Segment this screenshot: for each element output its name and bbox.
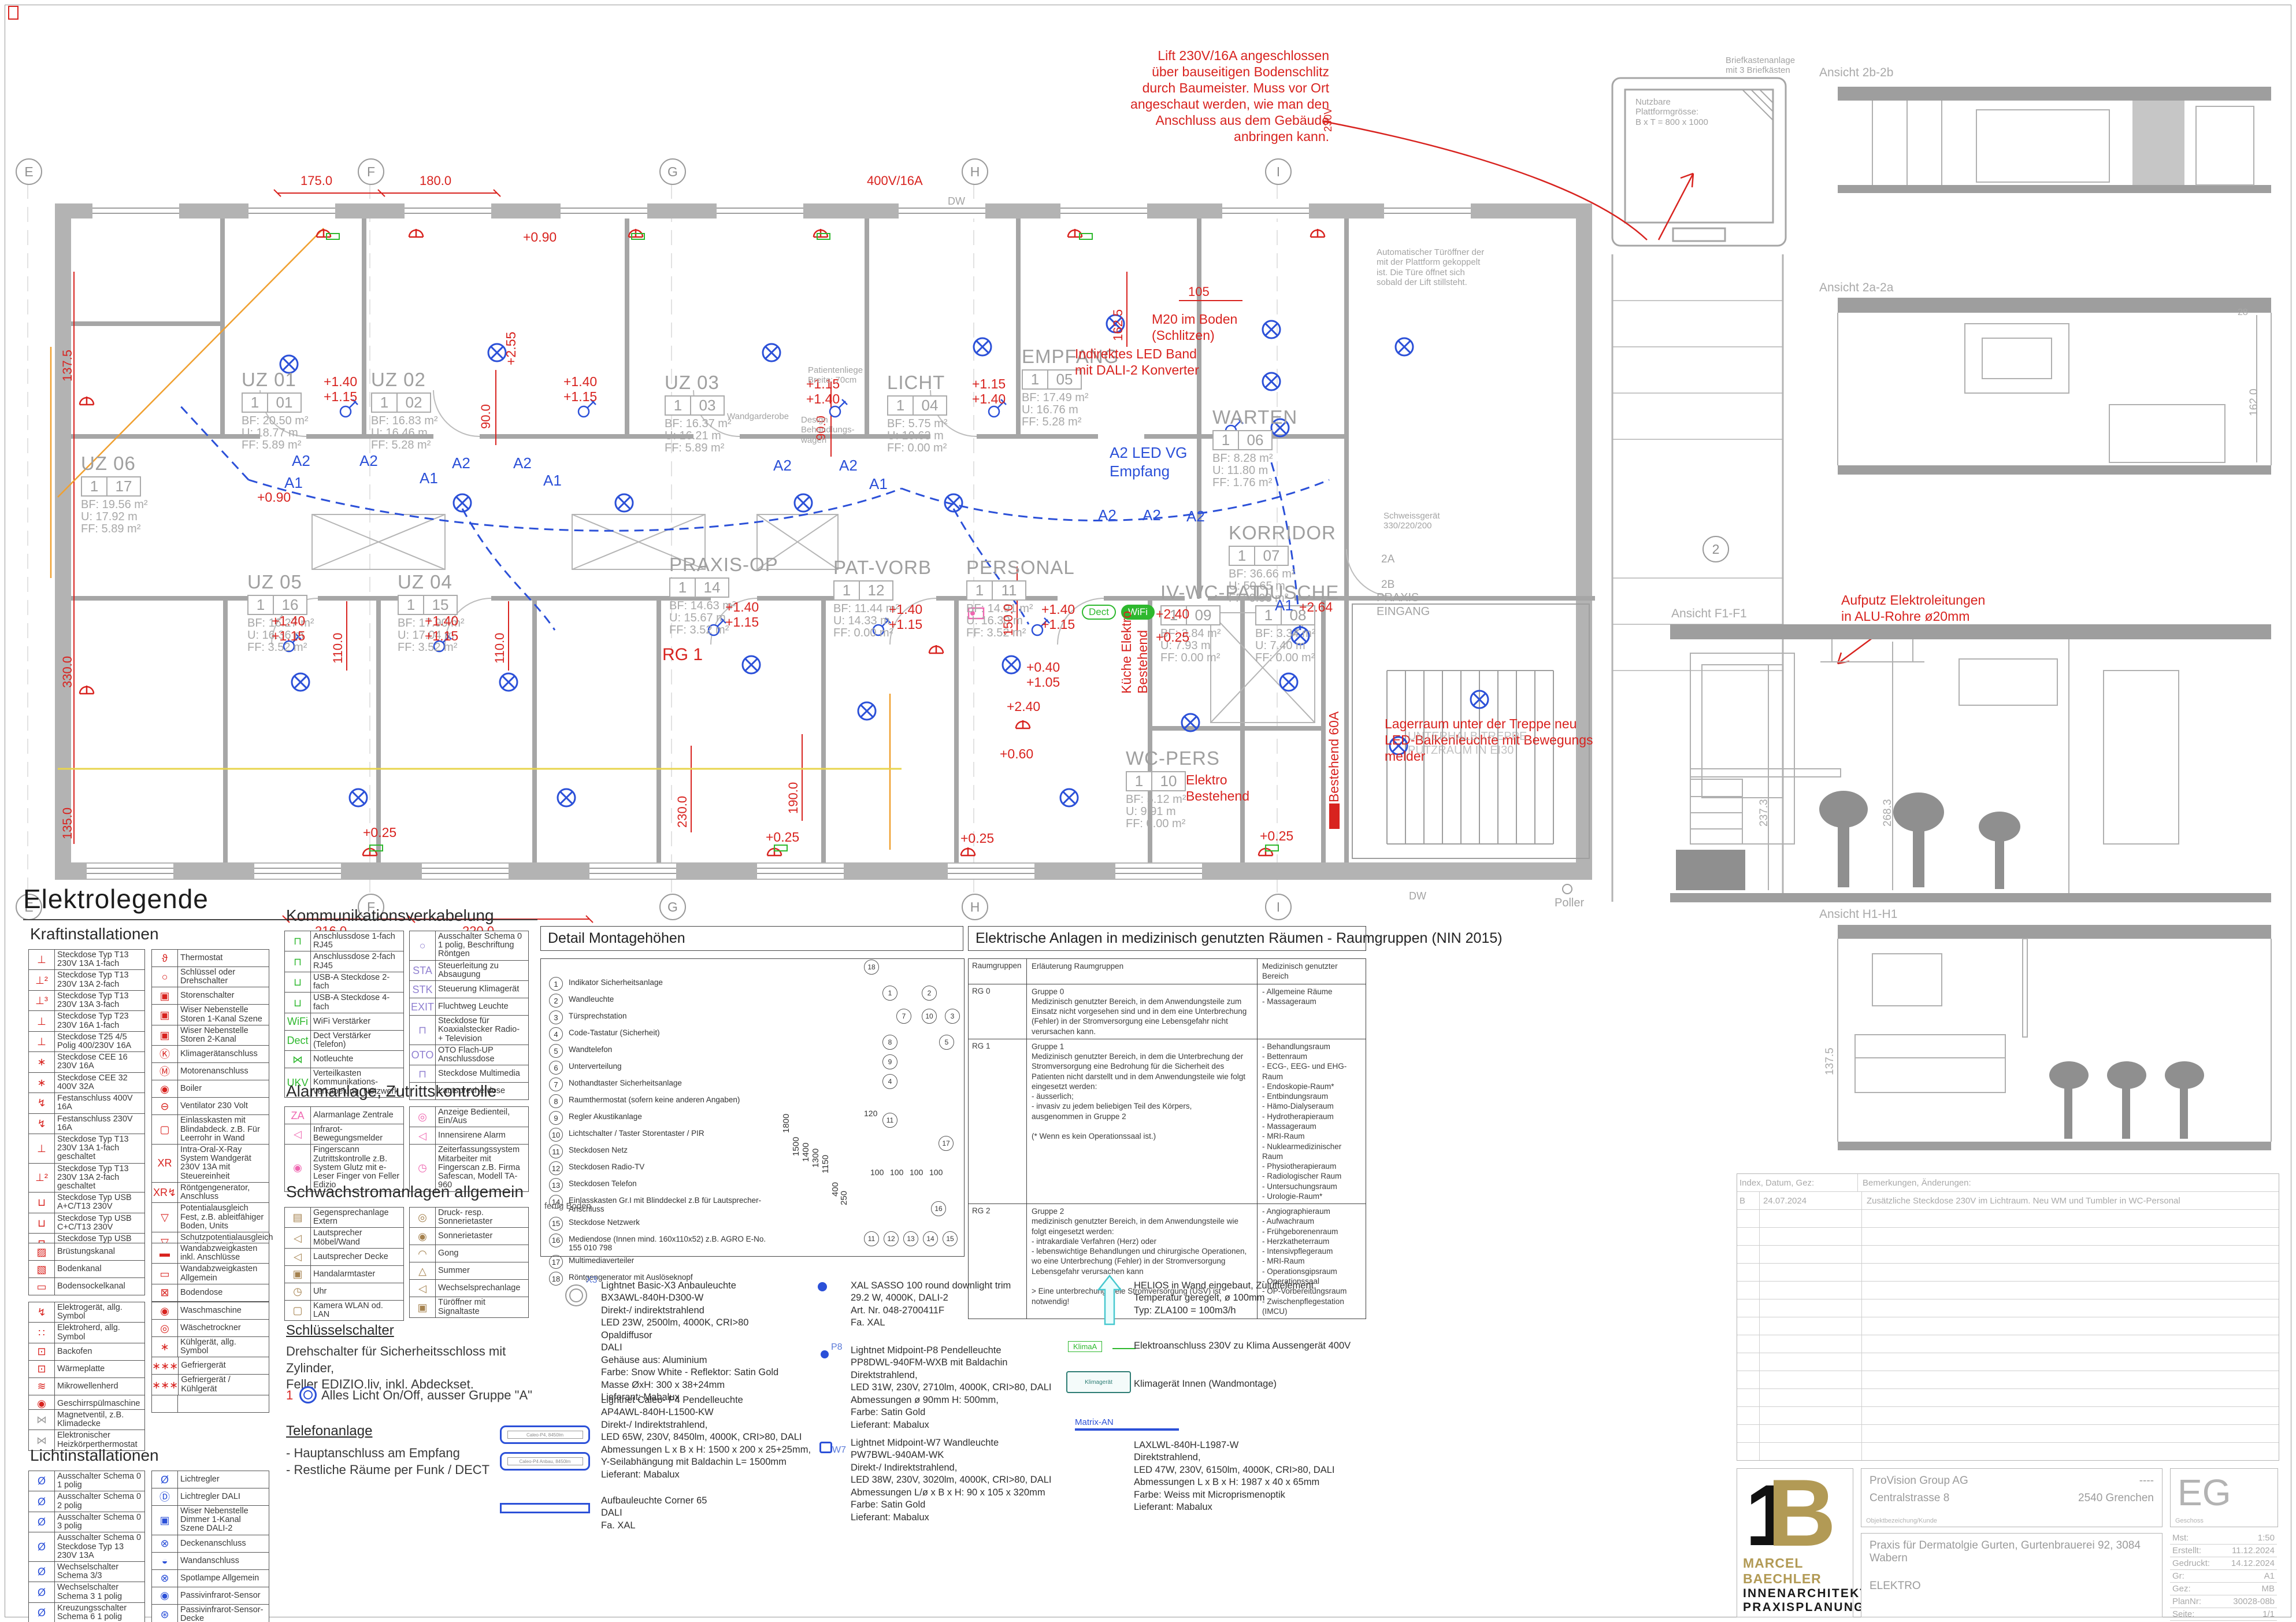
room-tag: UZ 03103BF: 16.37 m² U: 16.21 m FF: 5.89…	[665, 373, 732, 454]
legend-item: ○Schlüssel oder Drehschalter	[152, 967, 269, 987]
legend-item: ▣Türöffner mit Signaltaste	[410, 1297, 528, 1317]
level-mark: +1.40 +1.15	[272, 614, 305, 644]
level-mark: +0.90	[523, 230, 557, 245]
legend-item: ⊗Deckenanschluss	[152, 1535, 269, 1553]
legend-item: ∗∗∗Gefriergerät	[152, 1357, 269, 1375]
logo: 1B	[1737, 1469, 1853, 1556]
legend-symbol-icon: ◠	[410, 1245, 436, 1262]
level-mark: +0.40 +1.05	[1026, 660, 1060, 690]
legend-item: STASteuerleitung zu Absaugung	[410, 961, 528, 981]
legend-symbol-icon: ⊥²	[29, 1164, 55, 1193]
lift-230v-label: 230V	[1322, 108, 1335, 132]
montage-item: 6Unterverteilung	[549, 1061, 780, 1075]
caleo-bar-icon: Caleo-P4 Anbau, 8450lm	[500, 1452, 590, 1471]
grid-bubble: H	[962, 894, 988, 920]
legend-item: ◎Druck- resp. Sonnerietaster	[410, 1208, 528, 1228]
client-dash: ----	[2139, 1475, 2154, 1487]
legend-item: ⊥³Steckdose Typ T13 230V 13A 3-fach	[29, 991, 144, 1011]
grid-bubble: E	[16, 158, 42, 185]
montage-item: 13Steckdosen Telefon	[549, 1178, 780, 1192]
dim-label: 110.0	[492, 633, 507, 664]
section-title: Kommunikationsverkabelung	[286, 906, 494, 925]
room-tag: UZ 02102BF: 16.83 m² U: 16.46 m FF: 5.28…	[371, 370, 438, 451]
project-discipline: ELEKTRO	[1861, 1565, 2162, 1593]
legend-symbol-icon: ZA	[285, 1107, 311, 1124]
legend-item: ⊓Anschlussdose 1-fach RJ45	[285, 931, 403, 951]
led-band-note: Indirektes LED Band mit DALI-2 Konverter	[1075, 346, 1199, 378]
legend-symbol-icon: ⊔	[285, 993, 311, 1012]
legend-item: ◎Anzeige Bedienteil, Ein/Aus	[410, 1107, 528, 1127]
meta-row: Seite:1/1	[2170, 1608, 2277, 1621]
office-address: Mühlestrasse 9 CH-2540 Grenchen T. 032 5…	[1743, 1619, 1847, 1622]
legend-item: ∷Elektroherd, allg. Symbol	[29, 1323, 144, 1343]
lift-note: Lift 230V/16A angeschlossen über bauseit…	[1098, 47, 1329, 145]
level-mark: +0.25	[363, 825, 396, 840]
level-mark: +2.40	[1007, 699, 1040, 714]
brand-line: INNENARCHITEKTUR	[1743, 1587, 1847, 1601]
legend-symbol-icon: ⊥³	[29, 991, 55, 1010]
legend-symbol-icon: ◁	[410, 1127, 436, 1144]
legend-symbol-icon: △	[410, 1262, 436, 1279]
dim-label: 175.0	[301, 173, 332, 188]
elevation-dim: 237.3	[1758, 799, 1771, 827]
legend-col: ○Ausschalter Schema 0 1 polig, Beschrift…	[409, 931, 529, 1100]
klimageraet-icon: Klimagerät	[1066, 1371, 1131, 1393]
luminaire-spec: LAXLWL-840H-L1987-W Direktstrahlend, LED…	[1134, 1439, 1411, 1514]
legend-symbol-icon: ∗∗∗	[152, 1375, 179, 1394]
legend-item: ⊠Bodendose	[152, 1284, 269, 1302]
grid-bubble: G	[659, 894, 686, 920]
legend-item: ◁Wechselsprechanlage	[410, 1280, 528, 1297]
telefon-text: - Hauptanschluss am Empfang - Restliche …	[286, 1445, 529, 1478]
helios-arrow-icon	[1095, 1275, 1124, 1327]
legend-symbol-icon: Ø	[29, 1562, 55, 1582]
putzraum-note: UNTERHALB TREPPE PUTZRAUM IN EI30	[1408, 729, 1527, 758]
key-number: 1	[286, 1387, 293, 1404]
project-title: Praxis für Dermatolgie Gurten, Gurtenbra…	[1861, 1534, 2162, 1565]
bestehend-note: Bestehend 60A	[1326, 712, 1342, 802]
nin-header: RaumgruppenErläuterung RaumgruppenMedizi…	[969, 959, 1366, 984]
legend-symbol-icon: ○	[410, 931, 436, 960]
legend-symbol-icon: ∗	[29, 1073, 55, 1093]
legend-symbol-icon: OTO	[410, 1045, 436, 1065]
legend-symbol-icon	[152, 1395, 178, 1412]
dim-label: 137.5	[60, 350, 75, 382]
circuit-label: A1	[284, 474, 303, 492]
dect-repeater-icon: Dect	[1082, 605, 1116, 620]
legend-symbol-icon: ▭	[152, 1264, 178, 1283]
legend-item: ◉Waschmaschine	[152, 1302, 269, 1320]
legend-item: ZAAlarmanlage Zentrale	[285, 1107, 403, 1124]
nin-row: RG 0Gruppe 0 Medizinisch genutzter Berei…	[969, 984, 1366, 1039]
legend-symbol-icon: Ø	[29, 1512, 55, 1532]
legend-col: ZAAlarmanlage Zentrale◁Infrarot-Bewegung…	[284, 1106, 404, 1192]
montage-item: 16Mediendose (Innen mind. 160x110x52) z.…	[549, 1234, 780, 1253]
legend-col: ⊓Anschlussdose 1-fach RJ45⊓Anschlussdose…	[284, 931, 404, 1098]
dw-label: DW	[1409, 890, 1426, 903]
legend-symbol-icon: ▣	[152, 1506, 178, 1535]
plan-sheet: E F G H I E F G H I 2 UZ 06117BF: 19.56 …	[0, 0, 2296, 1622]
montage-title: Detail Montagehöhen	[540, 926, 963, 951]
legend-symbol-icon: ⊓	[410, 1016, 436, 1045]
legend-item: ⊥Steckdose Typ T13 230V 13A 1-fach	[29, 950, 144, 970]
legend-symbol-icon: ◷	[285, 1283, 311, 1300]
legend-item: XRIntra-Oral-X-Ray System Wandgerät 230V…	[152, 1145, 269, 1183]
dim-label: 90.0	[479, 404, 494, 429]
room-tag: UZ 06117BF: 19.56 m² U: 17.92 m FF: 5.89…	[81, 454, 148, 535]
legend-symbol-icon: ▣	[152, 987, 178, 1004]
level-mark: +0.25	[766, 830, 799, 845]
legend-item: ◁Lautsprecher Möbel/Wand	[285, 1228, 403, 1248]
legend-symbol-icon: ↯	[29, 1093, 55, 1113]
montage-item: 11Steckdosen Netz	[549, 1145, 780, 1158]
section-title: Schwachstromanlagen allgemein	[286, 1183, 524, 1201]
montage-items: 1Indikator Sicherheitsanlage2Wandleuchte…	[549, 977, 780, 1288]
dim-label: 150.0	[1001, 604, 1016, 636]
section-title: Kraftinstallationen	[30, 925, 159, 943]
legend-item: ▤Gegensprechanlage Extern	[285, 1208, 403, 1228]
room-tag: IV-WC-PAT109BF: 3.84 m² U: 7.93 m FF: 0.…	[1160, 583, 1262, 664]
legend-item: ØWechselschalter Schema 3/3	[29, 1562, 144, 1582]
brand-line: PRAXISPLANUNG	[1743, 1601, 1847, 1614]
luminaire-spec: Klimagerät Innen (Wandmontage)	[1134, 1378, 1411, 1390]
room-tag: WARTEN106BF: 8.28 m² U: 11.80 m FF: 1.76…	[1212, 408, 1297, 489]
grid-bubble: F	[358, 158, 384, 185]
legend-item: ⓀKlimagerätanschluss	[152, 1046, 269, 1063]
legend-item: ⓂMotorenanschluss	[152, 1063, 269, 1080]
m20-note: M20 im Boden (Schlitzen)	[1152, 311, 1237, 343]
legend-symbol-icon: Dect	[285, 1031, 311, 1050]
led-vg-note: A2 LED VG Empfang	[1110, 444, 1187, 480]
legend-item: ◎Wäschetrockner	[152, 1320, 269, 1337]
dim-label: 190.0	[786, 782, 801, 814]
luminaire-spec: Lightnet Midpoint-W7 Wandleuchte PW7BWL-…	[851, 1437, 1105, 1524]
legend-item: ▨Brüstungskanal	[29, 1243, 144, 1261]
elevation-dim: 137.5	[1824, 1047, 1837, 1075]
legend-item: ⊖Ventilator 230 Volt	[152, 1098, 269, 1115]
grid-bubble: 2	[1702, 536, 1729, 562]
matrix-an-tag: Matrix-AN	[1075, 1417, 1179, 1431]
section-title: Telefonanlage	[286, 1423, 372, 1439]
legend-item: ⊓Anschlussdose 2-fach RJ45	[285, 951, 403, 972]
legend-item	[152, 1395, 269, 1413]
luminaire-spec: Aufbauleuchte Corner 65 DALI Fa. XAL	[601, 1495, 844, 1532]
legend-item: ØAusschalter Schema 0 Steckdose Typ 13 2…	[29, 1532, 144, 1562]
legend-item: ▣Wiser Nebenstelle Storen 2-Kanal	[152, 1025, 269, 1046]
legend-symbol-icon: ⊓	[285, 931, 311, 951]
corner65-icon	[500, 1503, 590, 1513]
dim-label: 135.0	[60, 808, 75, 839]
dim-label: 105	[1188, 284, 1210, 299]
luminaire-spec: HELIOS in Wand eingebaut, Zuluftelement,…	[1134, 1280, 1405, 1317]
legend-symbol-icon: WiFi	[285, 1013, 311, 1030]
room-tag: LICHT104BF: 5.75 m² U: 10.63 m FF: 0.00 …	[887, 373, 947, 454]
level-mark: +1.40 +1.15	[425, 614, 458, 644]
section-title: Lichtinstallationen	[30, 1446, 159, 1465]
legend-item: △Summer	[410, 1262, 528, 1280]
legend-symbol-icon: ▣	[285, 1266, 311, 1283]
legend-item: ◉Boiler	[152, 1080, 269, 1098]
legend-item: ∗Kühlgerät, allg. Symbol	[152, 1337, 269, 1357]
briefkasten-note: Briefkastenanlage mit 3 Briefkästen	[1726, 55, 1795, 76]
legend-item: ▣Handalarmtaster	[285, 1266, 403, 1283]
dim-label: 330.0	[60, 656, 75, 688]
liege-label: Patientenliege Breite: 70cm	[808, 365, 863, 386]
legend-item: ↯Festanschluss 400V 16A	[29, 1093, 144, 1113]
legend-symbol-icon: ◎	[152, 1320, 178, 1336]
legend-item: ØKreuzungsschalter Schema 6 1 polig	[29, 1603, 144, 1622]
legend-item: ⊛Passivinfrarot-Sensor-Decke	[152, 1605, 269, 1622]
elevation-dim: 268.3	[1882, 799, 1894, 827]
legend-item: EXITFluchtweg Leuchte	[410, 998, 528, 1016]
floor-caption: Geschoss	[2175, 1517, 2204, 1524]
legend-symbol-icon: ◉	[410, 1228, 436, 1245]
dw-label: DW	[948, 195, 965, 208]
legend-item: ØAusschalter Schema 0 3 polig	[29, 1512, 144, 1532]
legend-symbol-icon: ∗∗∗	[152, 1357, 179, 1374]
legend-symbol-icon: STK	[410, 981, 436, 998]
circuit-label: A1	[420, 469, 438, 487]
legend-symbol-icon: ⊥²	[29, 970, 55, 990]
legend-col: ◎Anzeige Bedienteil, Ein/Aus◁Innensirene…	[409, 1106, 529, 1192]
circuit-label: A2	[359, 452, 378, 470]
montage-item: 15Steckdose Netzwerk	[549, 1217, 780, 1231]
floor-code: EG	[2171, 1469, 2278, 1514]
logo-block: 1B MARCEL BAECHLER INNENARCHITEKTUR PRAX…	[1737, 1468, 1853, 1617]
circuit-label: A2	[1143, 506, 1161, 524]
legend-symbol-icon: Ⓓ	[152, 1488, 178, 1505]
legend-item: ⊗Spotlampe Allgemein	[152, 1570, 269, 1587]
legend-item: XR↯Röntgengenerator, Anschluss	[152, 1183, 269, 1203]
legend-item: ØWechselschalter Schema 3 1 polig	[29, 1582, 144, 1602]
legend-symbol-icon: STA	[410, 961, 436, 980]
legend-symbol-icon: ◁	[285, 1124, 311, 1144]
circuit-label: A2	[452, 454, 470, 472]
legend-item: ⊓Steckdose für Koaxialstecker Radio- + T…	[410, 1016, 528, 1045]
legend-item: ◁Infrarot-Bewegungsmelder	[285, 1124, 403, 1145]
legend-symbol-icon: ◁	[285, 1249, 311, 1265]
luminaire-spec: XAL SASSO 100 round downlight trim 29.2 …	[851, 1280, 1099, 1330]
grid-bubble: I	[1265, 894, 1292, 920]
room-group-label: RG 1	[662, 645, 703, 665]
legend-item: ◷Uhr	[285, 1283, 403, 1301]
room-tag: DUSCHE108BF: 3.34 m² U: 7.40 m FF: 0.00 …	[1255, 583, 1339, 664]
legend-symbol-icon: ○	[152, 967, 178, 987]
legend-col: ◎Druck- resp. Sonnerietaster◉Sonnerietas…	[409, 1207, 529, 1318]
legend-symbol-icon: ⊔	[29, 1193, 55, 1212]
legend-symbol-icon: ⊓	[285, 951, 311, 971]
legend-item: ▣Storenschalter	[152, 987, 269, 1005]
section-title: Schlüsselschalter	[286, 1323, 394, 1339]
platform-note: Nutzbare Plattformgrösse: B x T = 800 x …	[1635, 97, 1708, 127]
legend-item: ⊔USB-A Steckdose 2-fach	[285, 972, 403, 993]
montage-item: 5Wandtelefon	[549, 1044, 780, 1058]
pos-2b: 2B	[1381, 578, 1394, 591]
legend-item: ≋Mikrowellenherd	[29, 1378, 144, 1395]
garderobe-label: Wandgarderobe	[727, 412, 789, 421]
legend-item: ↯Elektrogerät, allg. Symbol	[29, 1302, 144, 1323]
montage-item: 2Wandleuchte	[549, 994, 780, 1008]
legend-item: ⊥²Steckdose Typ T13 230V 13A 2-fach	[29, 970, 144, 990]
legend-symbol-icon: Ø	[29, 1532, 55, 1561]
project-box: Praxis für Dermatolgie Gurten, Gurtenbra…	[1861, 1533, 2163, 1617]
legend-symbol-icon: XR	[152, 1145, 178, 1182]
dim-label: 400V/16A	[867, 173, 923, 188]
legend-symbol-icon: ◉	[152, 1302, 178, 1319]
legend-item: OTOOTO Flach-UP Anschlussdose	[410, 1045, 528, 1065]
circuit-label: A1	[869, 475, 888, 493]
floor-box: EG Geschoss	[2170, 1468, 2278, 1527]
legend-symbol-icon: ▬	[152, 1243, 178, 1263]
legend-symbol-icon: ⋈	[29, 1410, 55, 1430]
legend-symbol-icon: ⊛	[152, 1605, 178, 1622]
legend-item: ▧Bodenkanal	[29, 1261, 144, 1278]
legend-symbol-icon: Ø	[152, 1471, 178, 1488]
client-name: ProVision Group AG	[1870, 1475, 1968, 1487]
legend-symbol-icon: ◉	[152, 1587, 178, 1604]
legend-col: ▤Gegensprechanlage Extern◁Lautsprecher M…	[284, 1207, 404, 1321]
legend-item: ∗∗∗Gefriergerät / Kühlgerät	[152, 1375, 269, 1395]
legend-symbol-icon: ▧	[29, 1261, 55, 1277]
legend-item: ◠Gong	[410, 1245, 528, 1262]
legend-col: ϑThermostat○Schlüssel oder Drehschalter▣…	[151, 949, 269, 1270]
p8-dot-icon	[821, 1350, 829, 1358]
legend-symbol-icon: Ø	[29, 1491, 55, 1511]
x3-tag: X3	[586, 1275, 598, 1286]
eingang-label: PRAXIS EINGANG	[1377, 591, 1430, 619]
elevation-label: Ansicht F1-F1	[1671, 607, 1747, 621]
legend-item: DectDect Verstärker (Telefon)	[285, 1031, 403, 1051]
legend-item: ▣Wiser Nebenstelle Dimmer 1-Kanal Szene …	[152, 1506, 269, 1535]
elevation-dim: 28	[2238, 308, 2248, 318]
legend-symbol-icon: ▽	[152, 1203, 178, 1232]
aufputz-note: Aufputz Elektroleitungen in ALU-Rohre ø2…	[1841, 592, 1985, 624]
legend-symbol-icon: ⊥	[29, 1134, 55, 1163]
legend-symbol-icon: ▣	[410, 1297, 436, 1317]
legend-symbol-icon: ⊥	[29, 1011, 55, 1031]
legend-col: ØAusschalter Schema 0 1 poligØAusschalte…	[28, 1471, 145, 1622]
level-mark: +2.55	[504, 332, 519, 365]
legend-item: ⊔Steckdose Typ USB C+C/T13 230V	[29, 1213, 144, 1234]
level-mark: +1.40 +1.15	[1041, 602, 1075, 632]
meta-row: Mst:1:50	[2170, 1532, 2277, 1545]
revision-header: Index, Datum, Gez:Bemerkungen, Änderunge…	[1737, 1174, 2279, 1192]
circuit-label: A2	[773, 457, 792, 475]
level-mark: +0.90	[257, 490, 291, 505]
w7-icon	[819, 1442, 832, 1453]
legend-item: ⊓Steckdose Multimedia	[410, 1065, 528, 1083]
legend-item: ◉Passivinfrarot-Sensor	[152, 1587, 269, 1605]
legend-symbol-icon: ▣	[152, 1005, 178, 1024]
legend-symbol-icon: ⊡	[29, 1361, 55, 1377]
legend-col: ⋈Magnetventil, z.B. Klimadecke⋈Elektroni…	[28, 1409, 145, 1451]
legend-item: ▬Wandabzweigkasten inkl. Anschlüsse	[152, 1243, 269, 1264]
circuit-label: A1	[1275, 597, 1293, 614]
legend-item: ⊔USB-A Steckdose 4-fach	[285, 993, 403, 1013]
legend-item: ↯Festanschluss 230V 16A	[29, 1114, 144, 1134]
legend-symbol-icon: ⊓	[410, 1065, 436, 1082]
legend-symbol-icon: ▢	[152, 1115, 178, 1144]
legend-symbol-icon: ◁	[410, 1280, 436, 1297]
legend-symbol-icon: ∗	[29, 1052, 55, 1072]
montage-item: 7Nothandtaster Sicherheitsanlage	[549, 1077, 780, 1091]
elektro-note: Elektro Bestehend	[1186, 772, 1249, 804]
legend-col: ↯Elektrogerät, allg. Symbol∷Elektroherd,…	[28, 1302, 145, 1413]
legend-item: ϑThermostat	[152, 950, 269, 967]
legend-item: ◉Sonnerietaster	[410, 1228, 528, 1245]
client-city: 2540 Grenchen	[2078, 1492, 2154, 1505]
client-caption: Objektbezeichung/Kunde	[1866, 1517, 1937, 1524]
legend-item: ⋈Magnetventil, z.B. Klimadecke	[29, 1410, 144, 1430]
dim-label: 110.0	[331, 633, 346, 664]
legend-symbol-icon: Ø	[29, 1603, 55, 1622]
legend-col: ▬Wandabzweigkasten inkl. Anschlüsse▭Wand…	[151, 1243, 269, 1302]
legend-symbol-icon: ⊔	[29, 1213, 55, 1233]
legend-symbol-icon: ◒	[152, 1553, 178, 1569]
legend-symbol-icon: ▢	[285, 1301, 311, 1320]
legend-item: ØAusschalter Schema 0 1 polig	[29, 1471, 144, 1491]
legend-symbol-icon: ▤	[285, 1208, 311, 1227]
legend-item: ⒹLichtregler DALI	[152, 1488, 269, 1506]
door-opener-note: Automatischer Türöffner der mit der Plat…	[1377, 247, 1509, 287]
legend-symbol-icon: Ø	[29, 1582, 55, 1602]
level-mark: +1.40 +1.15	[563, 375, 597, 405]
legend-symbol-icon: ↯	[29, 1302, 55, 1322]
client-street: Centralstrasse 8	[1870, 1492, 1949, 1505]
meta-row: Gedruckt:14.12.2024	[2170, 1557, 2277, 1570]
legend-symbol-icon: ◎	[410, 1107, 436, 1127]
legend-symbol-icon: ⊖	[152, 1098, 178, 1114]
legend-item: ⊥Steckdose T25 4/5 Polig 400/230V 16A	[29, 1032, 144, 1052]
level-mark: +2.64	[1299, 600, 1333, 615]
legend-item: ◁Innensirene Alarm	[410, 1127, 528, 1145]
level-mark: +0.25	[1156, 630, 1189, 645]
legend-symbol-icon: ⋈	[285, 1051, 311, 1068]
legend-item: ▣Wiser Nebenstelle Storen 1-Kanal Szene	[152, 1005, 269, 1025]
legend-symbol-icon: ϑ	[152, 950, 178, 966]
revision-table: Index, Datum, Gez:Bemerkungen, Änderunge…	[1737, 1173, 2279, 1461]
dim-label: 180.0	[420, 173, 451, 188]
schweiss-note: Schweissgerät 330/220/200	[1383, 511, 1440, 531]
legend-symbol-icon: ⊗	[152, 1535, 178, 1552]
legend-symbol-icon: ▭	[29, 1278, 55, 1295]
section-title: Alarmanlage, Zutrittskontrolle	[286, 1082, 496, 1101]
legend-symbol-icon: ⊥	[29, 1032, 55, 1051]
legend-symbol-icon: Ø	[29, 1471, 55, 1491]
legend-symbol-icon: XR↯	[152, 1183, 178, 1202]
legend-item: ▭Bodensockelkanal	[29, 1278, 144, 1295]
room-tag: PRAXIS-OP114BF: 14.63 m² U: 15.67 m FF: …	[669, 555, 778, 636]
legend-col: ◉Waschmaschine◎Wäschetrockner∗Kühlgerät,…	[151, 1302, 269, 1413]
level-mark: +0.60	[1000, 747, 1033, 762]
meta-row: PlanNr:30028-08b	[2170, 1595, 2277, 1608]
meta-row: Gr:A1	[2170, 1570, 2277, 1583]
level-mark: +1.40 +1.15	[324, 375, 357, 405]
poller-label: Poller	[1555, 896, 1584, 910]
montage-item: 17Multimediaverteiler	[549, 1255, 780, 1269]
legend-symbol-icon: ▣	[152, 1025, 178, 1045]
meta-table: Mst:1:50Erstellt:11.12.2024Gedruckt:14.1…	[2170, 1532, 2277, 1621]
legend-item: ⊥²Steckdose Typ T13 230V 13A 2-fach gesc…	[29, 1164, 144, 1193]
legend-item: ▭Wandabzweigkasten Allgemein	[152, 1264, 269, 1284]
legend-item: ⊔Steckdose Typ USB A+C/T13 230V	[29, 1193, 144, 1213]
legend-item: STKSteuerung Klimagerät	[410, 981, 528, 998]
legend-item: ◒Wandanschluss	[152, 1553, 269, 1570]
legend-symbol-icon: ⊡	[29, 1343, 55, 1360]
level-mark: +1.15 +1.40	[972, 377, 1006, 407]
legend-symbol-icon: Ⓜ	[152, 1063, 178, 1080]
client-box: ProVision Group AG ---- Centralstrasse 8…	[1861, 1468, 2163, 1527]
